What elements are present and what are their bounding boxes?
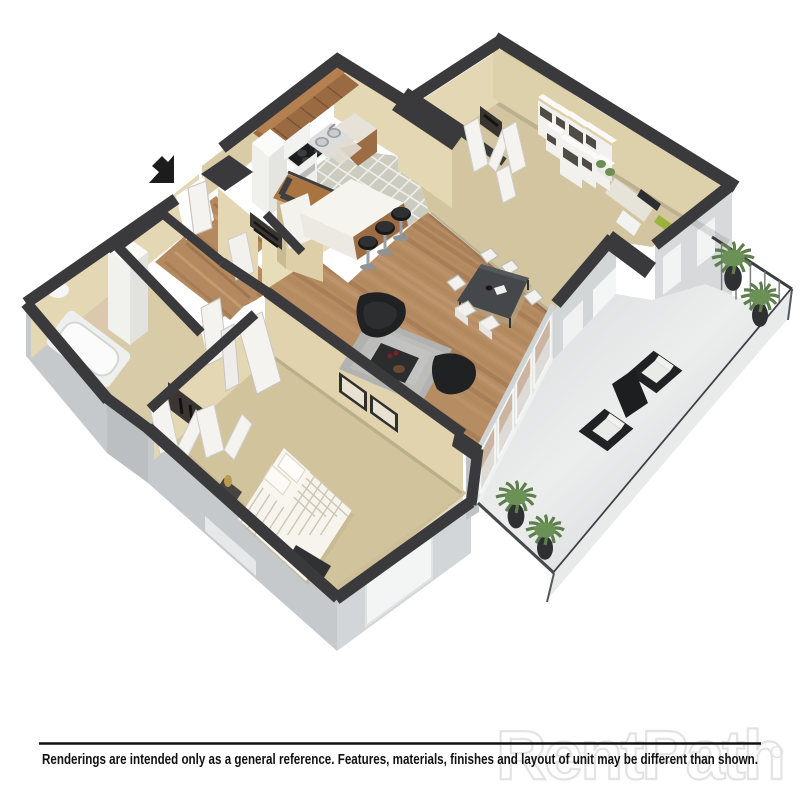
svg-text:Renderings are intended only a: Renderings are intended only as a genera… xyxy=(42,751,758,768)
